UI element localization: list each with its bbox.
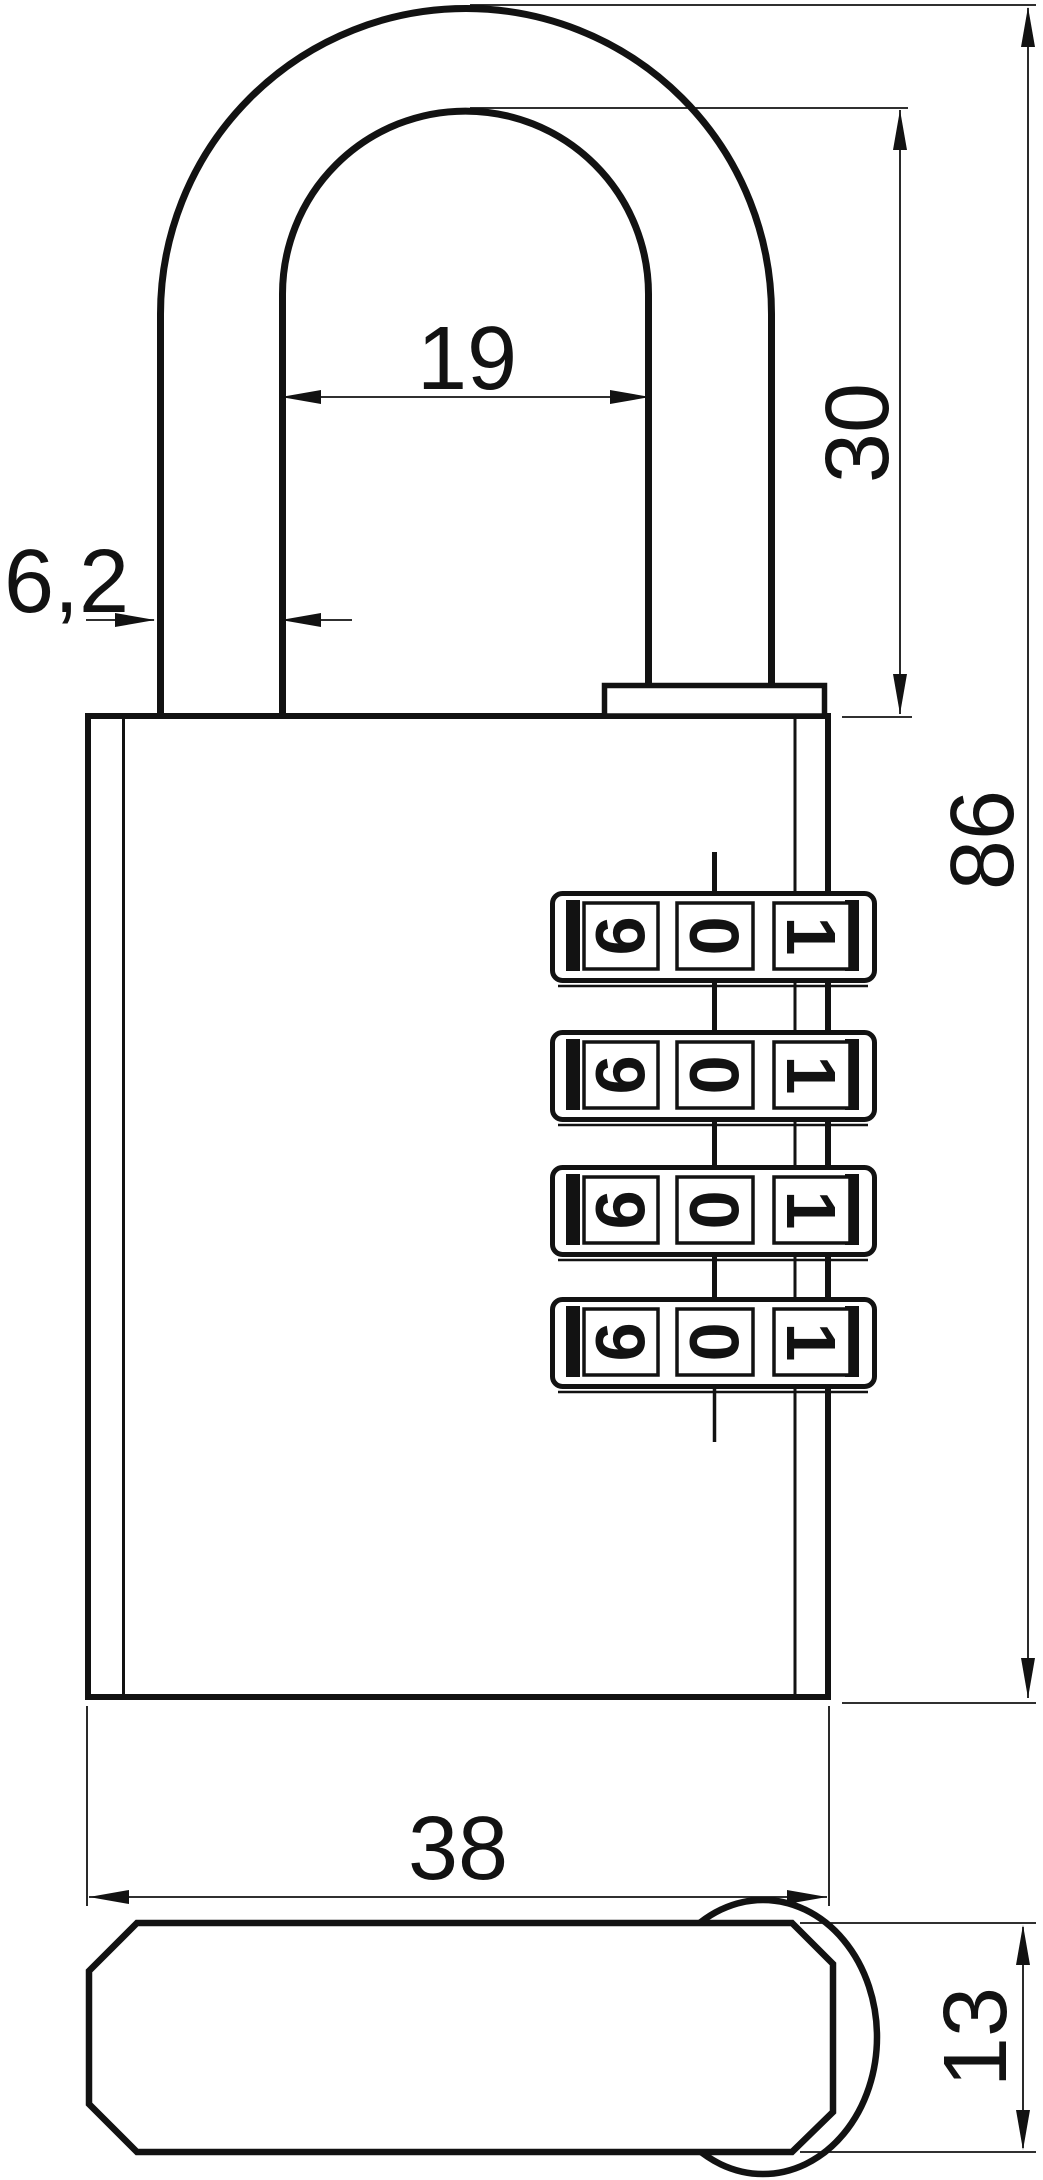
arrowhead [1021, 1658, 1035, 1698]
dim-label-shackle-diameter: 6,2 [4, 532, 129, 632]
arrowhead [89, 1890, 129, 1904]
dial-digit: 0 [675, 1323, 753, 1362]
dim-label-overall-height: 86 [933, 790, 1033, 890]
shackle-inner-outline [283, 111, 649, 716]
technical-drawing-canvas: 9 0 1 9 0 1 9 0 1 9 0 [0, 0, 1043, 2180]
arrowhead [281, 613, 321, 627]
dial-digit: 1 [772, 1323, 850, 1362]
dial-digit: 9 [581, 1056, 659, 1095]
arrowhead [787, 1890, 827, 1904]
dial-digit: 0 [675, 1191, 753, 1230]
dial-digit: 1 [772, 1056, 850, 1095]
dim-label-shackle-height: 30 [808, 383, 908, 483]
dim-label-body-width: 38 [408, 1799, 508, 1899]
padlock-technical-drawing: 9 0 1 9 0 1 9 0 1 9 0 [0, 0, 1043, 2180]
dim-label-shackle-inner-width: 19 [417, 309, 517, 409]
arrowhead [610, 390, 650, 404]
dial-digit: 9 [581, 1191, 659, 1230]
arrowhead [281, 390, 321, 404]
arrowhead [893, 674, 907, 714]
shackle-collar [605, 686, 825, 717]
dial-digit: 9 [581, 917, 659, 956]
dial-knurl-left [566, 1306, 580, 1377]
arrowhead [1016, 1925, 1030, 1965]
dial-digit: 9 [581, 1323, 659, 1362]
dial-knurl-left [566, 1039, 580, 1110]
dial-knurl-left [566, 1174, 580, 1245]
dial-digit: 1 [772, 917, 850, 956]
dial-row: 9 0 1 [553, 1033, 875, 1126]
dim-label-body-depth: 13 [926, 1987, 1026, 2087]
dial-digit: 0 [675, 1056, 753, 1095]
dial-row: 9 0 1 [553, 1168, 875, 1261]
bottom-view-body-outline [89, 1923, 833, 2152]
dial-digit: 1 [772, 1191, 850, 1230]
dial-digit: 0 [675, 917, 753, 956]
dial-row: 9 0 1 [553, 894, 875, 987]
arrowhead [893, 110, 907, 150]
dial-row: 9 0 1 [553, 1300, 875, 1393]
arrowhead [1016, 2110, 1030, 2150]
arrowhead [1021, 7, 1035, 47]
dial-knurl-left [566, 900, 580, 971]
